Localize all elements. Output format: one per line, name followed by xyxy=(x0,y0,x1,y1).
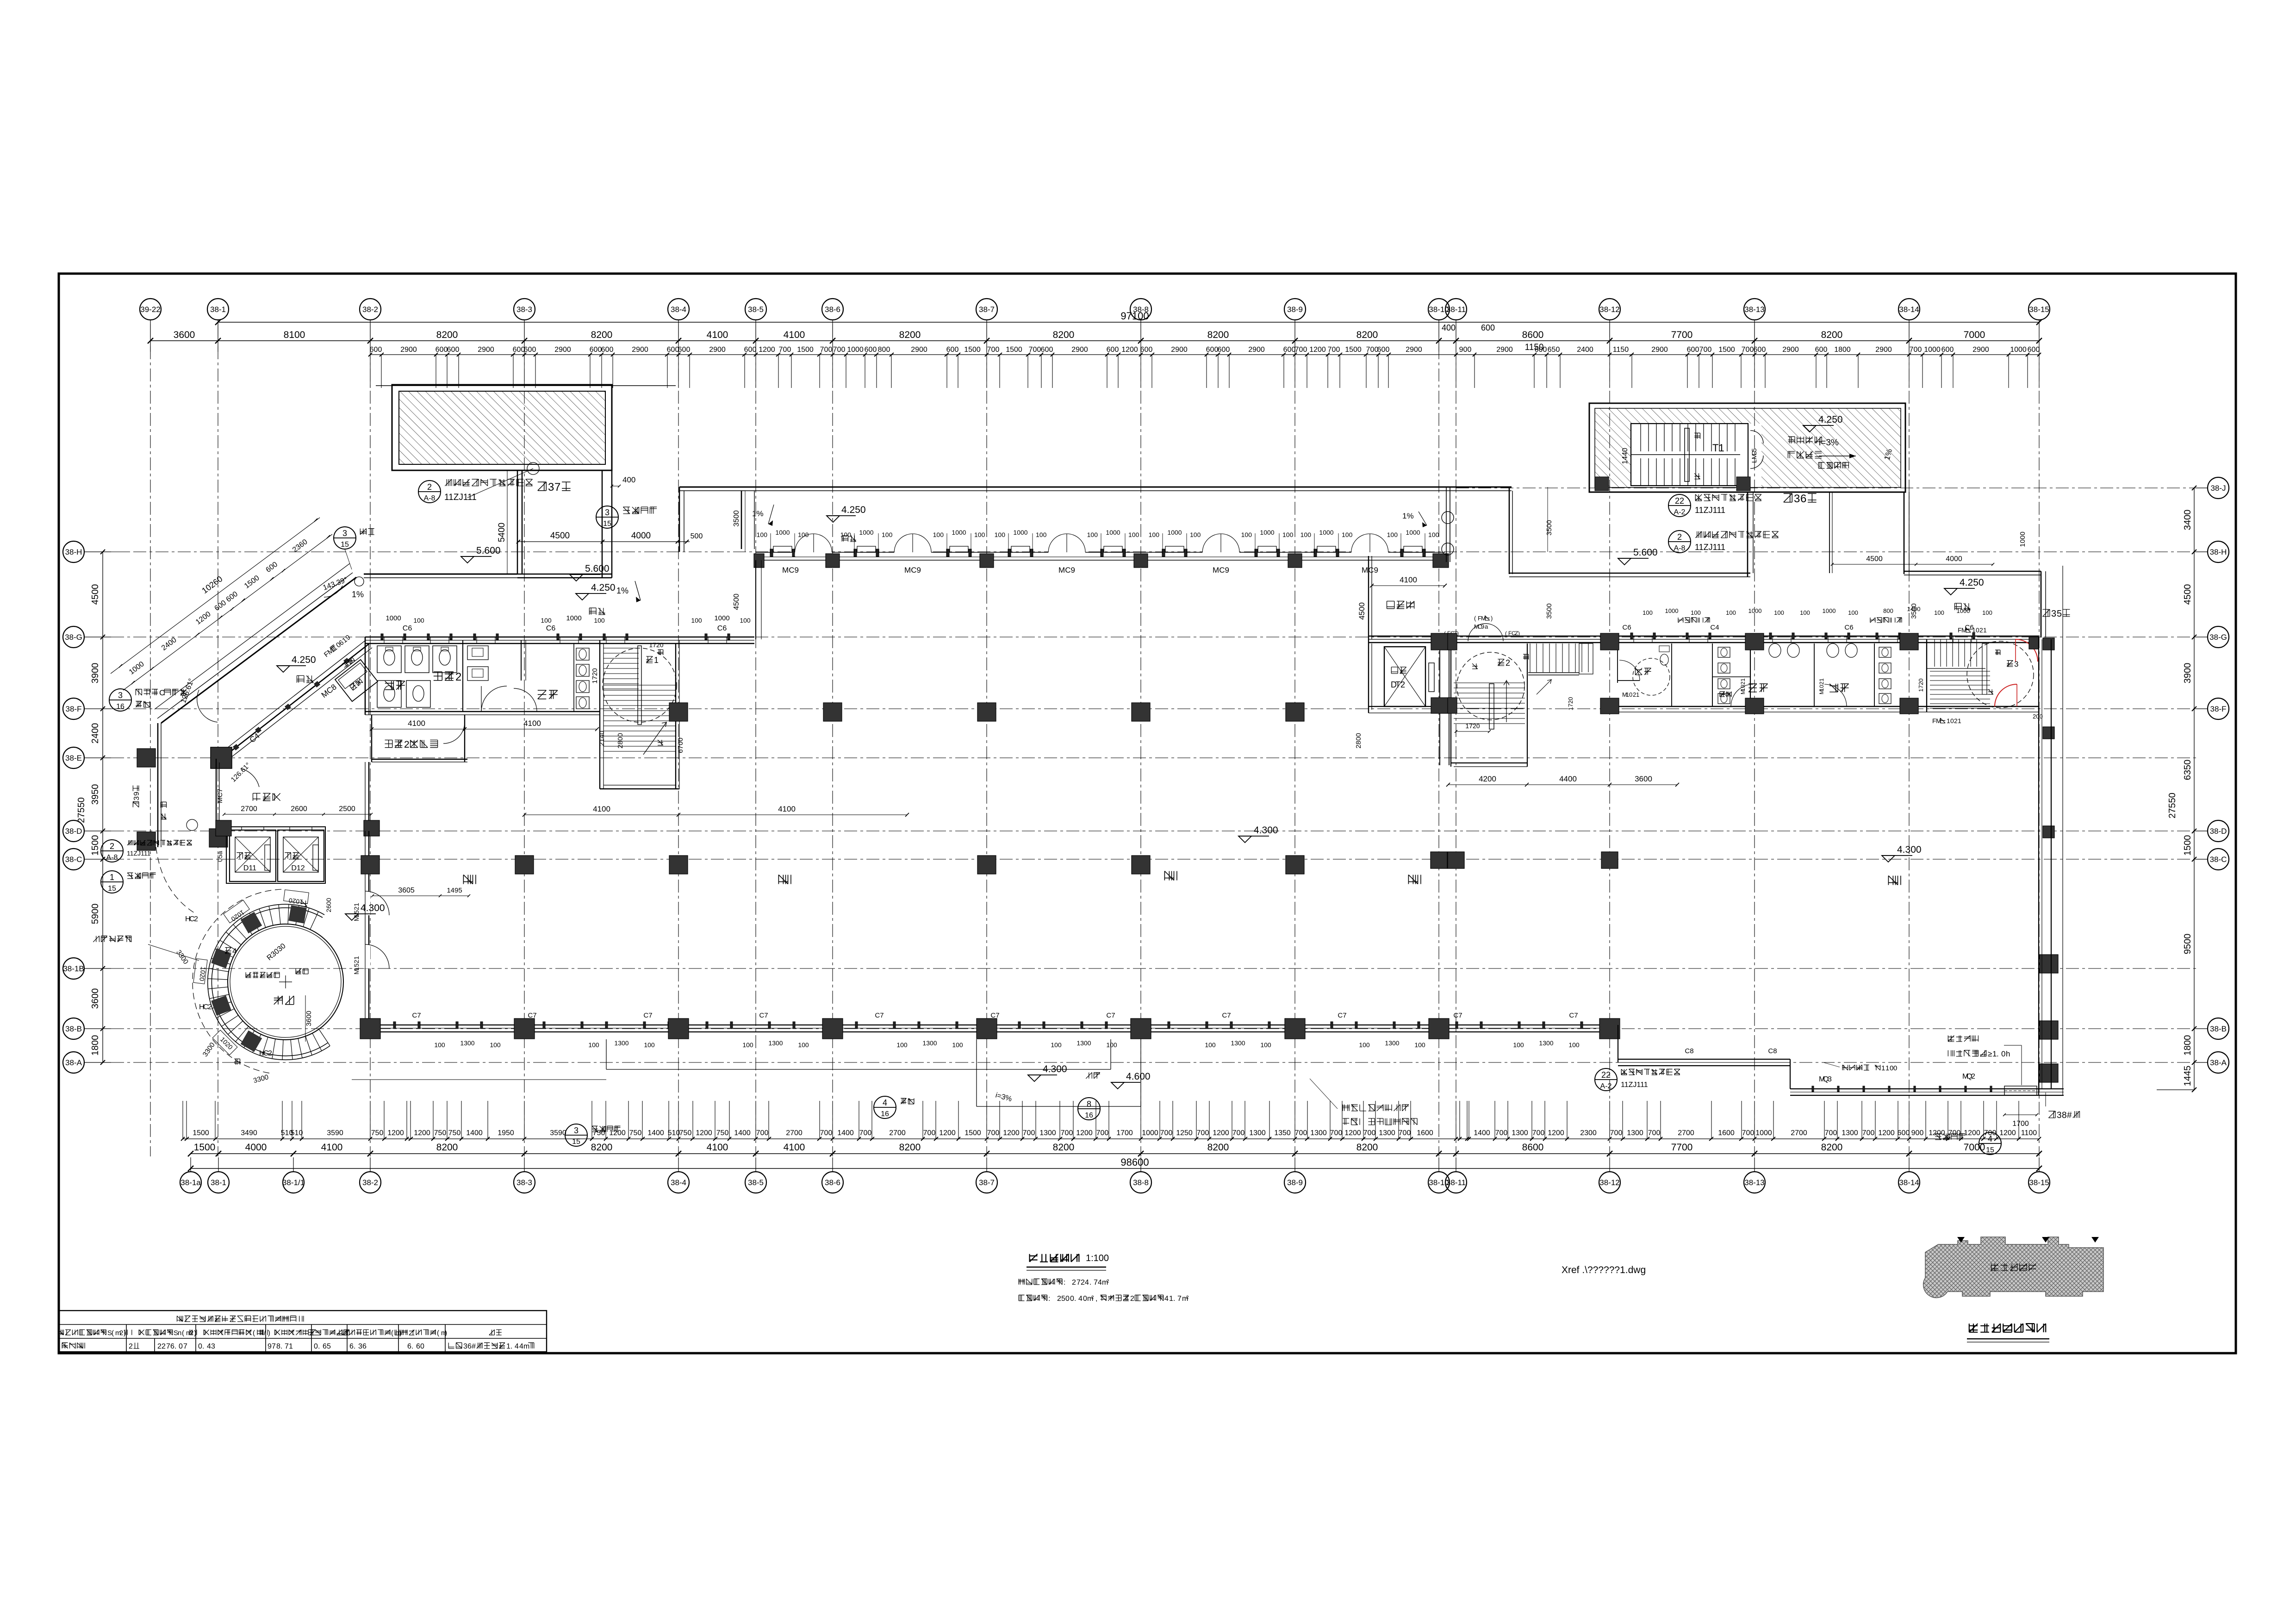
svg-text::: : xyxy=(1064,1279,1065,1287)
svg-text:2: 2 xyxy=(157,1343,162,1350)
svg-text:2400: 2400 xyxy=(90,723,100,744)
svg-text:4.600: 4.600 xyxy=(1126,1071,1151,1082)
svg-text:2: 2 xyxy=(1971,1073,1975,1081)
svg-text:1: 1 xyxy=(506,1343,510,1350)
svg-text:2: 2 xyxy=(1506,658,1510,668)
svg-text:4000: 4000 xyxy=(1946,555,1962,563)
svg-text:1000: 1000 xyxy=(386,614,401,622)
svg-text:1000: 1000 xyxy=(1106,529,1120,536)
svg-text:0: 0 xyxy=(198,1343,202,1350)
svg-text:2: 2 xyxy=(1954,717,1958,725)
svg-text:510: 510 xyxy=(668,1129,680,1137)
svg-text:700: 700 xyxy=(1825,1129,1837,1137)
svg-text:2700: 2700 xyxy=(1791,1129,1807,1137)
svg-text:800: 800 xyxy=(878,346,890,354)
svg-text:C7: C7 xyxy=(1338,1012,1346,1019)
svg-text:16: 16 xyxy=(881,1110,889,1118)
svg-text:2600: 2600 xyxy=(291,805,307,813)
svg-text:(: ( xyxy=(437,1329,439,1337)
svg-text:100: 100 xyxy=(1934,609,1944,616)
svg-text:MC9: MC9 xyxy=(1362,566,1378,575)
svg-text:1300: 1300 xyxy=(614,1039,628,1047)
svg-text:1200: 1200 xyxy=(1076,1129,1093,1137)
svg-text:38-12: 38-12 xyxy=(1599,1178,1619,1187)
svg-text:100: 100 xyxy=(1205,1041,1216,1049)
svg-text:15: 15 xyxy=(108,885,116,893)
svg-text:3600: 3600 xyxy=(305,1011,313,1026)
svg-text:100: 100 xyxy=(1691,609,1701,616)
svg-text:3: 3 xyxy=(133,796,141,800)
svg-text:38-D: 38-D xyxy=(2210,827,2227,836)
svg-text:2900: 2900 xyxy=(911,346,927,354)
svg-text:2: 2 xyxy=(1979,626,1983,634)
svg-text:700: 700 xyxy=(1295,346,1307,354)
svg-text:4100: 4100 xyxy=(707,330,728,340)
svg-text:.: . xyxy=(174,1343,176,1350)
svg-text:1000: 1000 xyxy=(2010,346,2027,354)
svg-text:1250: 1250 xyxy=(1176,1129,1193,1137)
svg-text:9: 9 xyxy=(1481,623,1484,630)
svg-text:2900: 2900 xyxy=(1496,346,1513,354)
svg-text:C6: C6 xyxy=(403,625,412,632)
svg-text:3500: 3500 xyxy=(1545,520,1553,535)
svg-text:100: 100 xyxy=(1848,609,1858,616)
svg-text:100: 100 xyxy=(644,1041,655,1049)
svg-text:1000: 1000 xyxy=(1319,529,1333,536)
svg-text:5: 5 xyxy=(327,1343,331,1350)
svg-text:2: 2 xyxy=(353,960,360,963)
svg-text:Xref .\??????1.dwg: Xref .\??????1.dwg xyxy=(1562,1265,1646,1275)
svg-text:1500: 1500 xyxy=(964,346,981,354)
svg-text:,: , xyxy=(1095,1295,1097,1303)
svg-text:700: 700 xyxy=(1948,1129,1961,1137)
svg-text:700: 700 xyxy=(820,346,833,354)
svg-text:1400: 1400 xyxy=(1474,1129,1490,1137)
svg-text:600: 600 xyxy=(601,346,614,354)
svg-text:1445: 1445 xyxy=(2183,1066,2193,1087)
svg-text:L: L xyxy=(1750,459,1758,463)
svg-text:8: 8 xyxy=(1087,1099,1091,1109)
svg-text:38-12: 38-12 xyxy=(1599,305,1619,314)
svg-text:38-B: 38-B xyxy=(65,1024,82,1033)
svg-text:1: 1 xyxy=(1983,626,1987,634)
svg-text:1150: 1150 xyxy=(1613,346,1629,354)
svg-text:1000: 1000 xyxy=(1013,529,1027,536)
svg-text:4100: 4100 xyxy=(778,805,796,813)
svg-text:100: 100 xyxy=(933,531,944,538)
svg-text:3605: 3605 xyxy=(398,887,415,894)
svg-text:100: 100 xyxy=(896,1041,908,1049)
svg-text:1300: 1300 xyxy=(1039,1129,1056,1137)
svg-text:600: 600 xyxy=(1687,346,1699,354)
svg-text:1000: 1000 xyxy=(714,614,729,622)
svg-text:C6: C6 xyxy=(717,625,727,632)
svg-text:1500: 1500 xyxy=(193,1129,209,1137)
svg-text:7: 7 xyxy=(272,1343,276,1350)
svg-text:1: 1 xyxy=(1947,717,1950,725)
svg-text:2: 2 xyxy=(353,906,360,910)
svg-text:700: 700 xyxy=(1699,346,1712,354)
svg-text:100: 100 xyxy=(1282,531,1294,538)
svg-text:1500: 1500 xyxy=(964,1129,981,1137)
svg-text:700: 700 xyxy=(1610,1129,1623,1137)
svg-text:1%: 1% xyxy=(616,586,628,595)
svg-text:8200: 8200 xyxy=(436,330,458,340)
svg-text:6: 6 xyxy=(362,1343,367,1350)
svg-text:3: 3 xyxy=(2014,660,2018,668)
svg-text:1000: 1000 xyxy=(1260,529,1274,536)
svg-text:100: 100 xyxy=(490,1041,501,1049)
svg-text:4500: 4500 xyxy=(733,593,740,610)
svg-text:700: 700 xyxy=(1862,1129,1875,1137)
svg-text:MC9: MC9 xyxy=(904,566,921,575)
svg-text:C: C xyxy=(159,688,165,697)
svg-text:38-5: 38-5 xyxy=(748,305,764,314)
svg-text:15: 15 xyxy=(341,541,349,549)
svg-text:600: 600 xyxy=(1898,1129,1910,1137)
svg-text:38-J: 38-J xyxy=(2210,484,2226,493)
svg-text:A-2: A-2 xyxy=(1600,1082,1612,1090)
svg-text:1%: 1% xyxy=(1402,512,1414,520)
svg-text:8200: 8200 xyxy=(1356,330,1378,340)
svg-text:100: 100 xyxy=(588,1041,599,1049)
svg-text:): ) xyxy=(194,1329,196,1337)
svg-text:700: 700 xyxy=(923,1129,936,1137)
svg-text:3: 3 xyxy=(574,1126,579,1135)
svg-text:1500: 1500 xyxy=(194,1142,216,1153)
svg-text:1350: 1350 xyxy=(1274,1129,1291,1137)
svg-text:2: 2 xyxy=(268,1049,272,1057)
svg-text:700: 700 xyxy=(1495,1129,1508,1137)
svg-text:7: 7 xyxy=(285,1343,289,1350)
svg-text:4400: 4400 xyxy=(1559,775,1577,783)
svg-text:3: 3 xyxy=(463,1343,467,1350)
svg-text:3600: 3600 xyxy=(174,330,195,340)
svg-text:2900: 2900 xyxy=(478,346,494,354)
svg-text:1200: 1200 xyxy=(1999,1129,2016,1137)
svg-text:38-3: 38-3 xyxy=(516,1178,532,1187)
svg-text:7: 7 xyxy=(1076,1279,1081,1287)
svg-text:4100: 4100 xyxy=(523,719,541,728)
svg-text:38-2: 38-2 xyxy=(362,305,378,314)
svg-text:700: 700 xyxy=(1532,1129,1545,1137)
svg-text:05a: 05a xyxy=(216,851,224,862)
svg-text:1:100: 1:100 xyxy=(1086,1253,1109,1263)
svg-text:i=3%: i=3% xyxy=(1819,438,1839,448)
svg-text:100: 100 xyxy=(594,617,605,624)
svg-text:4: 4 xyxy=(207,1343,211,1350)
svg-text:2: 2 xyxy=(1677,532,1682,542)
svg-text:5.600: 5.600 xyxy=(476,545,501,556)
svg-text:200: 200 xyxy=(2033,713,2043,720)
svg-text:15: 15 xyxy=(572,1138,580,1146)
svg-text:7: 7 xyxy=(166,1343,170,1350)
svg-text:1000: 1000 xyxy=(952,529,966,536)
svg-text:11ZJ111: 11ZJ111 xyxy=(1695,543,1725,552)
svg-text:38-14: 38-14 xyxy=(1899,305,1919,314)
svg-text:1300: 1300 xyxy=(1310,1129,1327,1137)
svg-text:100: 100 xyxy=(1149,531,1160,538)
svg-text:700: 700 xyxy=(1366,346,1379,354)
svg-text:700: 700 xyxy=(1742,1129,1755,1137)
svg-text:3600: 3600 xyxy=(1635,775,1652,783)
svg-text:1300: 1300 xyxy=(1385,1039,1399,1047)
svg-text:8200: 8200 xyxy=(899,1142,921,1153)
svg-text:8200: 8200 xyxy=(1053,330,1075,340)
svg-text:2: 2 xyxy=(1072,1279,1076,1287)
svg-text:1300: 1300 xyxy=(768,1039,783,1047)
svg-text:38-A: 38-A xyxy=(65,1058,82,1067)
svg-text:8100: 8100 xyxy=(284,330,305,340)
svg-text:2: 2 xyxy=(208,1003,212,1011)
svg-text:2900: 2900 xyxy=(1171,346,1188,354)
svg-text:4500: 4500 xyxy=(90,584,100,605)
svg-text:3900: 3900 xyxy=(90,663,100,684)
svg-text:0: 0 xyxy=(179,1343,183,1350)
svg-text:1200: 1200 xyxy=(1003,1129,1020,1137)
svg-text:): ) xyxy=(445,1329,447,1337)
svg-text:1400: 1400 xyxy=(647,1129,664,1137)
svg-text:2400: 2400 xyxy=(1577,346,1593,354)
svg-text:750: 750 xyxy=(371,1129,384,1137)
svg-text:38-4: 38-4 xyxy=(671,1178,686,1187)
svg-text:4: 4 xyxy=(1078,1295,1083,1303)
svg-text:1700: 1700 xyxy=(2012,1120,2029,1128)
svg-text:3: 3 xyxy=(1794,493,1800,505)
svg-text:1: 1 xyxy=(353,967,360,971)
svg-text:510: 510 xyxy=(291,1129,303,1137)
svg-text:n: n xyxy=(178,1329,181,1337)
svg-text:1000: 1000 xyxy=(2019,531,2027,547)
svg-text:38-1/1: 38-1/1 xyxy=(282,1178,305,1187)
svg-text:C6: C6 xyxy=(1622,624,1631,631)
svg-text:700: 700 xyxy=(833,346,846,354)
svg-text:2: 2 xyxy=(194,915,198,923)
svg-text:11ZJ111: 11ZJ111 xyxy=(127,849,151,857)
svg-text:1200: 1200 xyxy=(1344,1129,1361,1137)
svg-text:0: 0 xyxy=(1065,1295,1070,1303)
svg-text:750: 750 xyxy=(716,1129,729,1137)
svg-text:T1: T1 xyxy=(1712,442,1724,454)
svg-text:2900: 2900 xyxy=(709,346,726,354)
svg-text:100: 100 xyxy=(995,531,1006,538)
svg-text:600: 600 xyxy=(370,346,382,354)
svg-text:1720: 1720 xyxy=(1567,697,1574,711)
svg-text:4500: 4500 xyxy=(1357,602,1366,620)
svg-text:4100: 4100 xyxy=(784,330,805,340)
svg-text:39-22: 39-22 xyxy=(140,305,160,314)
svg-text:38-C: 38-C xyxy=(65,855,82,864)
svg-text:1300: 1300 xyxy=(460,1039,474,1047)
svg-text:6: 6 xyxy=(407,1343,411,1350)
svg-text:0: 0 xyxy=(1976,626,1979,634)
svg-text:1200: 1200 xyxy=(414,1129,430,1137)
svg-text:4: 4 xyxy=(1085,1279,1089,1287)
svg-text:6: 6 xyxy=(323,1343,327,1350)
svg-text:5.600: 5.600 xyxy=(585,563,610,574)
svg-text:15: 15 xyxy=(1986,1146,1994,1154)
svg-text:1000: 1000 xyxy=(1755,1129,1772,1137)
svg-text:100: 100 xyxy=(798,1041,809,1049)
svg-text:2700: 2700 xyxy=(241,805,257,813)
svg-text:100: 100 xyxy=(1513,1041,1524,1049)
svg-text:1200: 1200 xyxy=(939,1129,956,1137)
svg-text:1600: 1600 xyxy=(1718,1129,1735,1137)
svg-text:8200: 8200 xyxy=(1821,330,1843,340)
svg-text:38-11: 38-11 xyxy=(1446,1178,1466,1187)
svg-text:3900: 3900 xyxy=(2183,663,2193,684)
svg-text:4500: 4500 xyxy=(2183,584,2193,605)
svg-text:38-14: 38-14 xyxy=(1899,1178,1919,1187)
svg-text:38-H: 38-H xyxy=(65,548,82,556)
svg-text:38-1a: 38-1a xyxy=(180,1178,201,1187)
svg-text:4.250: 4.250 xyxy=(1818,414,1843,425)
svg-text:C4: C4 xyxy=(1710,624,1719,631)
svg-text:600: 600 xyxy=(1535,346,1547,354)
svg-text:100: 100 xyxy=(1800,609,1810,616)
svg-text:C8: C8 xyxy=(1768,1047,1777,1055)
svg-text:1: 1 xyxy=(289,1343,293,1350)
svg-text:38-11: 38-11 xyxy=(1446,305,1466,314)
svg-text:600: 600 xyxy=(1041,346,1053,354)
svg-text:1000: 1000 xyxy=(1924,346,1941,354)
svg-text:7: 7 xyxy=(554,481,560,493)
svg-text:1000: 1000 xyxy=(1823,607,1836,614)
svg-text:1720: 1720 xyxy=(1465,722,1480,730)
svg-text:MC9: MC9 xyxy=(1213,566,1229,575)
svg-text:MC9: MC9 xyxy=(1058,566,1075,575)
svg-text:38-7: 38-7 xyxy=(979,1178,995,1187)
svg-text:1800: 1800 xyxy=(2183,1035,2193,1056)
svg-text:MC7: MC7 xyxy=(216,788,224,803)
svg-text:100: 100 xyxy=(413,617,424,624)
svg-text:38-6: 38-6 xyxy=(825,1178,840,1187)
svg-text:600: 600 xyxy=(590,346,602,354)
svg-text:600: 600 xyxy=(1754,346,1766,354)
svg-text:38-1: 38-1 xyxy=(210,305,226,314)
svg-text:900: 900 xyxy=(1459,346,1472,354)
svg-text:38-5: 38-5 xyxy=(748,1178,764,1187)
svg-text:4: 4 xyxy=(1164,1295,1169,1303)
svg-text:700: 700 xyxy=(1363,1129,1376,1137)
svg-text:100: 100 xyxy=(541,617,552,624)
svg-text:1495: 1495 xyxy=(447,887,462,894)
svg-text:3590: 3590 xyxy=(327,1129,343,1137)
svg-text:750: 750 xyxy=(448,1129,461,1137)
svg-text:8: 8 xyxy=(2062,1111,2067,1120)
svg-text:1: 1 xyxy=(1169,1295,1173,1303)
svg-text:6: 6 xyxy=(416,1343,420,1350)
svg-text:3: 3 xyxy=(342,529,347,538)
svg-text:2: 2 xyxy=(404,739,410,750)
svg-text:3950: 3950 xyxy=(90,784,100,805)
svg-text:C7: C7 xyxy=(1106,1012,1115,1019)
svg-text:7700: 7700 xyxy=(1671,330,1693,340)
svg-text:5900: 5900 xyxy=(90,904,100,924)
svg-text:2800: 2800 xyxy=(1355,733,1363,748)
svg-text:600: 600 xyxy=(744,346,757,354)
svg-text:3500: 3500 xyxy=(733,510,740,527)
svg-text:(: ( xyxy=(182,1329,184,1337)
svg-text:700: 700 xyxy=(987,1129,1000,1137)
svg-text:(: ( xyxy=(1474,615,1476,622)
svg-text:4: 4 xyxy=(515,1343,519,1350)
svg-text:1500: 1500 xyxy=(1006,346,1022,354)
svg-text:600: 600 xyxy=(1815,346,1828,354)
svg-text:750: 750 xyxy=(679,1129,692,1137)
svg-text:5: 5 xyxy=(353,963,360,967)
svg-text:100: 100 xyxy=(1190,531,1201,538)
svg-text:4: 4 xyxy=(1988,1134,1992,1143)
svg-text:700: 700 xyxy=(1029,346,1041,354)
svg-text:4: 4 xyxy=(1098,1279,1102,1287)
svg-text:6: 6 xyxy=(1800,493,1806,505)
svg-text:4500: 4500 xyxy=(1866,555,1883,563)
svg-text:1200: 1200 xyxy=(1213,1129,1229,1137)
svg-text:1300: 1300 xyxy=(1512,1129,1528,1137)
svg-text:1%: 1% xyxy=(352,590,364,599)
svg-text:38-13: 38-13 xyxy=(1744,305,1764,314)
svg-text:100: 100 xyxy=(1643,609,1653,616)
svg-text:1500: 1500 xyxy=(1345,346,1362,354)
svg-text::: : xyxy=(1048,1295,1050,1303)
svg-text:700: 700 xyxy=(1328,346,1340,354)
svg-text:38-15: 38-15 xyxy=(2029,305,2049,314)
svg-text:8200: 8200 xyxy=(899,330,921,340)
svg-text:1: 1 xyxy=(1972,626,1976,634)
svg-text:3: 3 xyxy=(1828,1075,1832,1083)
svg-text:38-H: 38-H xyxy=(2210,548,2227,556)
svg-text:C7: C7 xyxy=(412,1012,421,1019)
svg-text:.: . xyxy=(280,1343,282,1350)
svg-text:3600: 3600 xyxy=(90,988,100,1009)
svg-text:5: 5 xyxy=(2057,609,2062,619)
svg-text:100: 100 xyxy=(1342,531,1353,538)
svg-text:9: 9 xyxy=(268,1343,272,1350)
svg-text:2600: 2600 xyxy=(325,898,332,912)
svg-text:38-9: 38-9 xyxy=(1287,305,1303,314)
svg-text:1000: 1000 xyxy=(1142,1129,1158,1137)
svg-text:2: 2 xyxy=(129,1343,133,1350)
svg-text:100: 100 xyxy=(882,531,893,538)
svg-text:1720: 1720 xyxy=(1917,679,1924,692)
svg-text:100: 100 xyxy=(1106,1041,1117,1049)
svg-text:7700: 7700 xyxy=(1671,1142,1693,1153)
svg-text:2900: 2900 xyxy=(1972,346,1989,354)
svg-text:4500: 4500 xyxy=(550,531,570,541)
svg-text:8200: 8200 xyxy=(591,1142,613,1153)
svg-text:4100: 4100 xyxy=(784,1142,805,1153)
svg-text:5400: 5400 xyxy=(497,523,507,542)
svg-text:2900: 2900 xyxy=(1651,346,1668,354)
svg-text:38-1B: 38-1B xyxy=(63,964,84,973)
svg-text:6700: 6700 xyxy=(677,737,684,753)
svg-text:2: 2 xyxy=(1400,680,1405,689)
svg-text:2140: 2140 xyxy=(598,731,606,746)
svg-text:100: 100 xyxy=(434,1041,445,1049)
svg-text:2900: 2900 xyxy=(632,346,648,354)
svg-text:38-15: 38-15 xyxy=(2029,1178,2049,1187)
svg-text:1: 1 xyxy=(353,903,360,906)
svg-text:C7: C7 xyxy=(643,1012,652,1019)
svg-text:2: 2 xyxy=(1818,681,1825,685)
svg-text:4.250: 4.250 xyxy=(841,505,866,515)
svg-text:1300: 1300 xyxy=(1627,1129,1643,1137)
svg-text:A-8: A-8 xyxy=(106,854,118,862)
svg-text:1000: 1000 xyxy=(775,529,790,536)
svg-text:4: 4 xyxy=(883,1098,887,1107)
svg-text:4100: 4100 xyxy=(321,1142,343,1153)
